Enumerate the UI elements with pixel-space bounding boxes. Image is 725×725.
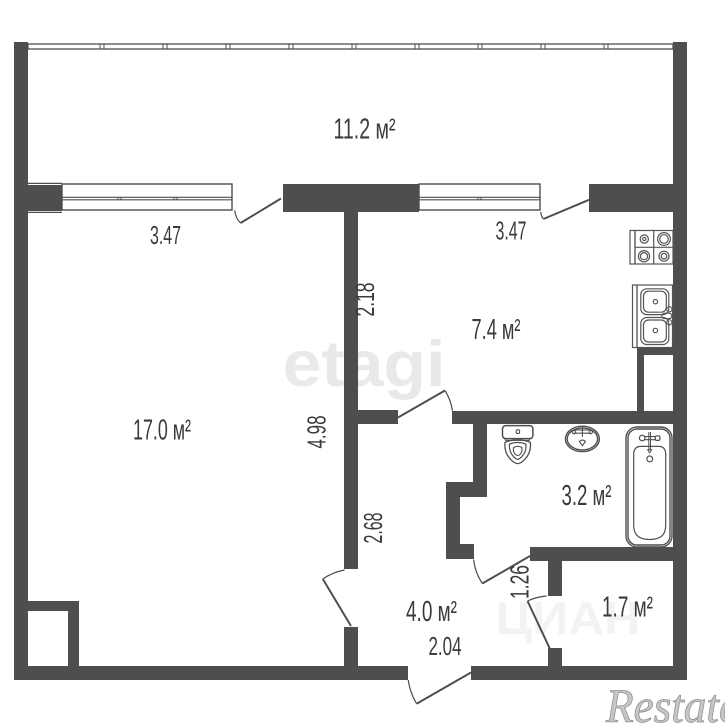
svg-text:etagi: etagi xyxy=(283,327,446,400)
svg-text:2.18: 2.18 xyxy=(350,283,380,317)
svg-text:4.0 м²: 4.0 м² xyxy=(406,596,457,628)
svg-text:3.2 м²: 3.2 м² xyxy=(562,480,612,512)
svg-text:17.0 м²: 17.0 м² xyxy=(133,415,191,447)
svg-text:Restate: Restate xyxy=(605,680,725,725)
svg-text:3.47: 3.47 xyxy=(150,220,181,250)
svg-text:11.2 м²: 11.2 м² xyxy=(334,114,396,146)
svg-text:1.7 м²: 1.7 м² xyxy=(602,592,653,624)
svg-text:7.4 м²: 7.4 м² xyxy=(472,314,521,346)
svg-text:3.47: 3.47 xyxy=(496,216,527,246)
svg-text:2.04: 2.04 xyxy=(429,631,462,661)
svg-text:4.98: 4.98 xyxy=(302,416,332,449)
svg-text:2.68: 2.68 xyxy=(358,513,388,544)
svg-text:1.26: 1.26 xyxy=(505,565,535,599)
